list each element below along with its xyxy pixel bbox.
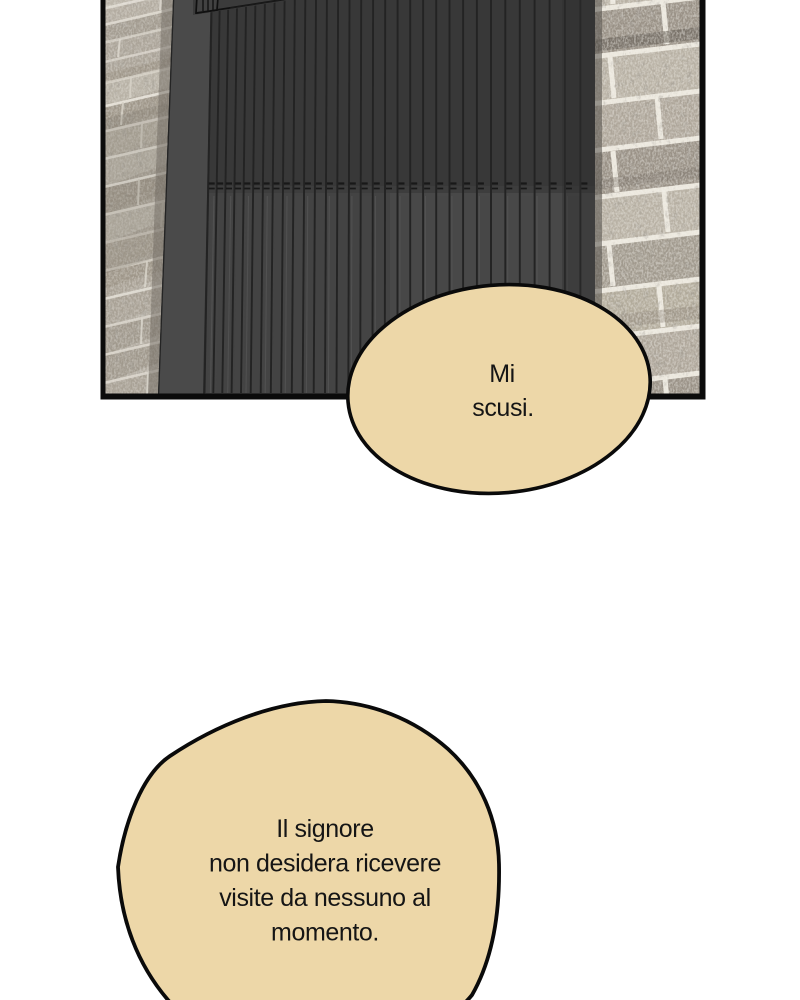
svg-text:Il signore: Il signore (276, 815, 373, 843)
svg-text:non desidera ricevere: non desidera ricevere (209, 850, 441, 878)
svg-text:scusi.: scusi. (472, 394, 534, 422)
svg-text:momento.: momento. (271, 919, 379, 947)
svg-text:visite da nessuno al: visite da nessuno al (219, 884, 431, 912)
svg-text:Mi: Mi (489, 360, 515, 388)
